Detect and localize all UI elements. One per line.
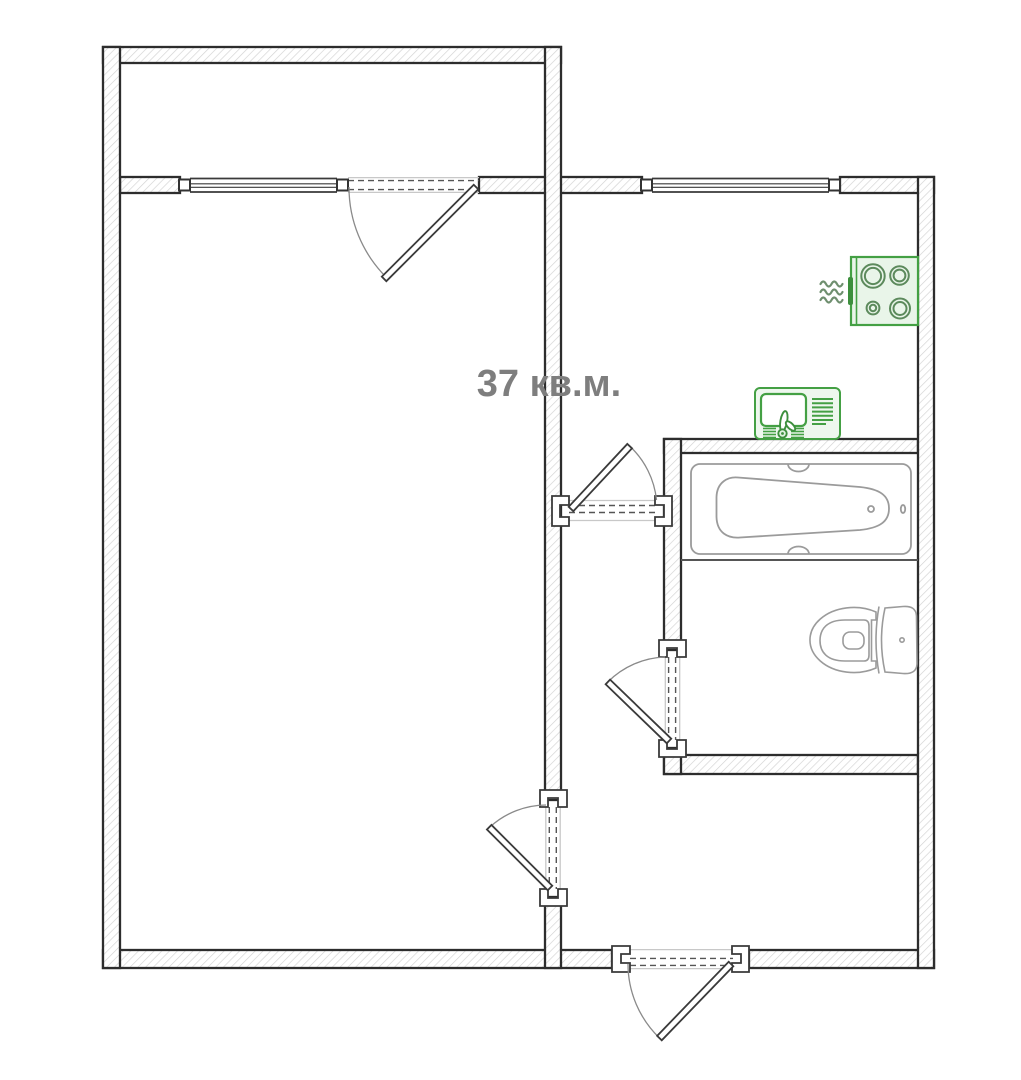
svg-text:37 кв.м.: 37 кв.м. xyxy=(477,363,621,405)
